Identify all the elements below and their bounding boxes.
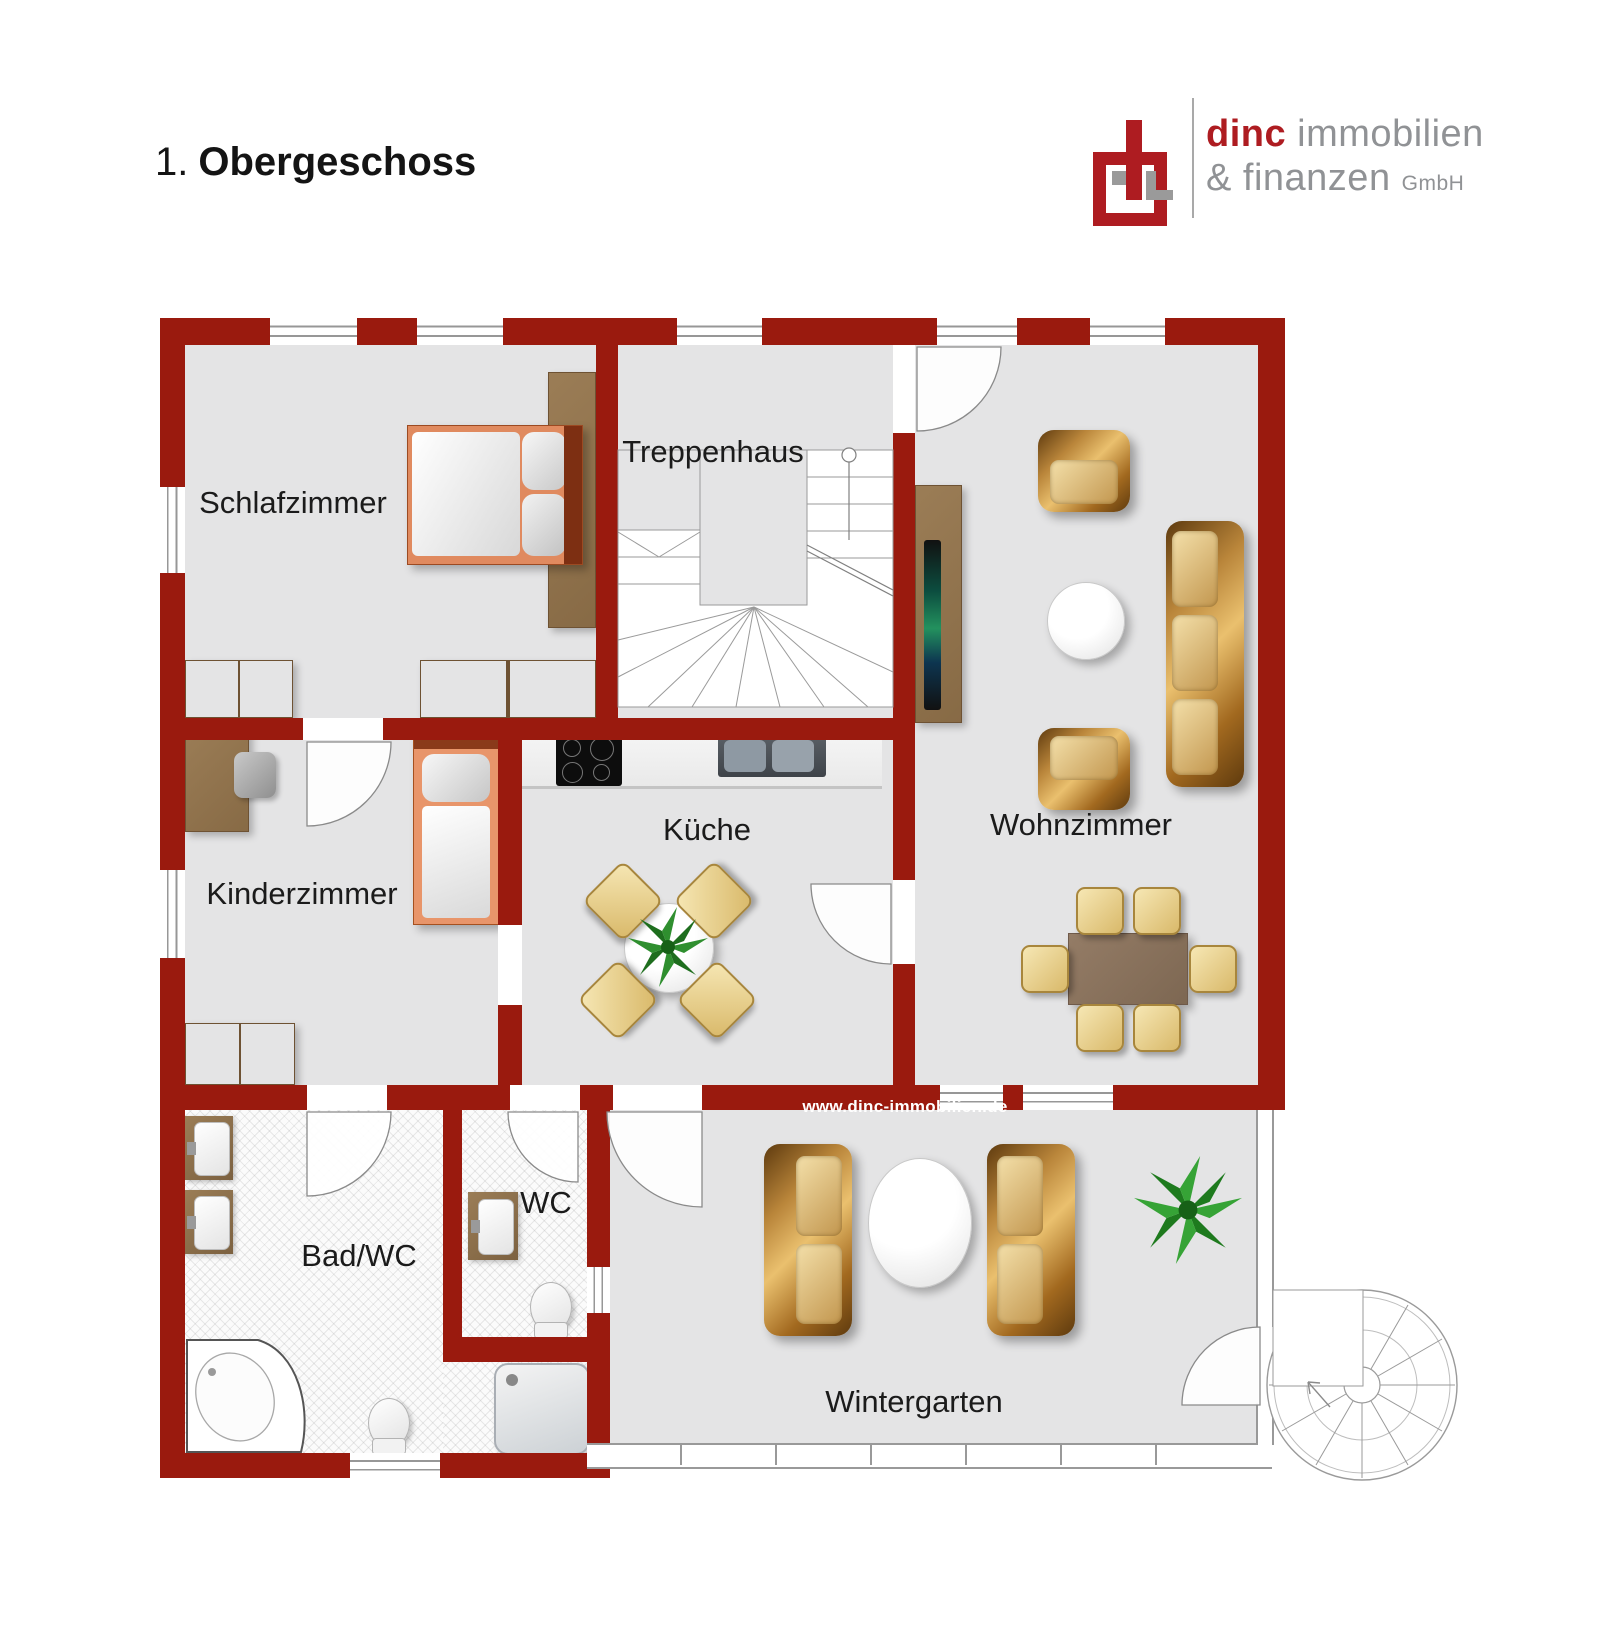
spiral-staircase — [1267, 1290, 1457, 1480]
room-label-wintergarten: Wintergarten — [825, 1384, 1002, 1420]
room-label-wc: WC — [520, 1185, 572, 1221]
door-arc — [607, 1112, 702, 1207]
room-label-bad: Bad/WC — [301, 1238, 416, 1274]
watermark-url: www.dinc-immobilien.de — [802, 1097, 1007, 1117]
floorplan-page: 1.Obergeschoss dinc immobilien & finanze… — [0, 0, 1600, 1637]
door-arc — [307, 1112, 391, 1196]
bathtub — [182, 1340, 305, 1454]
plan-linework — [0, 0, 1600, 1637]
door-arc — [508, 1112, 578, 1182]
door-arc — [917, 347, 1001, 431]
room-label-wohnzimmer: Wohnzimmer — [990, 807, 1172, 843]
door-arc — [1182, 1327, 1260, 1405]
room-label-treppenhaus: Treppenhaus — [622, 434, 804, 470]
staircase — [618, 448, 893, 707]
door-arc — [307, 742, 391, 826]
door-arc — [811, 884, 891, 964]
room-label-kinderzimmer: Kinderzimmer — [206, 876, 397, 912]
plant-icon — [628, 907, 708, 987]
room-label-kueche: Küche — [663, 812, 751, 848]
plant-icon — [1134, 1156, 1242, 1264]
room-label-schlafzimmer: Schlafzimmer — [199, 485, 387, 521]
